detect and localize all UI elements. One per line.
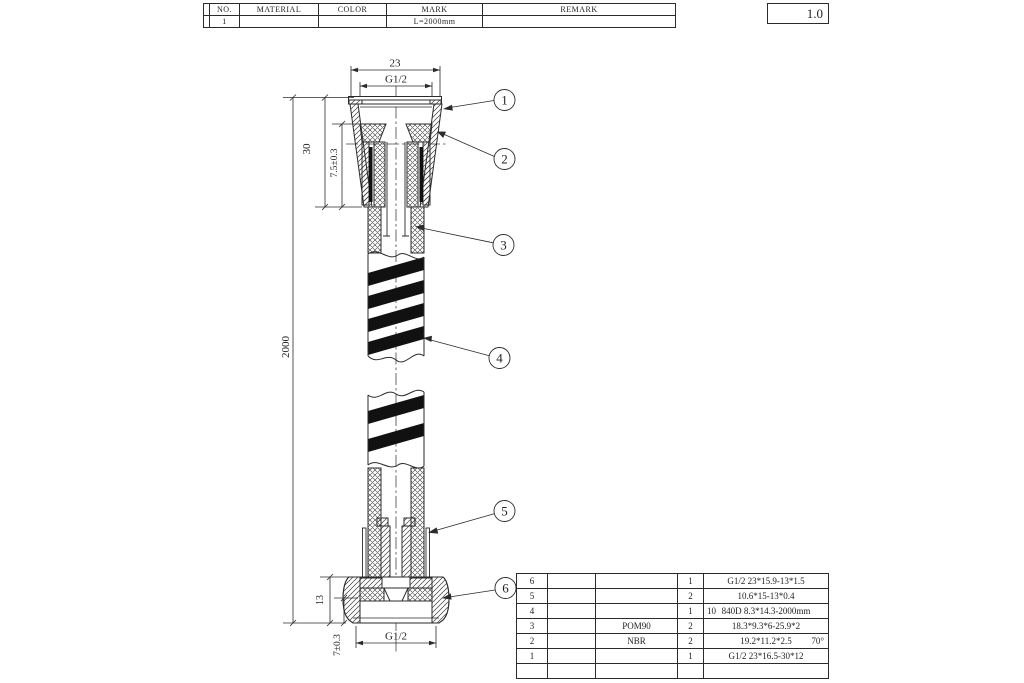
dim-g12-top-label: G1/2 (385, 74, 407, 86)
part-remark: G1/2 23*15.9-13*1.5 (704, 574, 829, 589)
title-row-material (240, 16, 319, 28)
dim-7-label: 7±0.3 (333, 634, 343, 656)
part-name (548, 634, 596, 649)
part-name (548, 604, 596, 619)
title-col-material: MATERIAL (240, 4, 319, 16)
title-col-remark: REMARK (483, 4, 676, 16)
parts-list-table: 6 1 G1/2 23*15.9-13*1.5 5 2 10.6*15-13*0… (516, 573, 829, 679)
part-qty: 2 (678, 634, 704, 649)
title-row-no: 1 (210, 16, 240, 28)
bottom-fitting-nut (343, 577, 449, 623)
part-material (596, 664, 678, 679)
part-no: 3 (517, 619, 548, 634)
title-col-color: COLOR (319, 4, 387, 16)
dim-13-label: 13 (315, 595, 326, 605)
part-material: POM90 (596, 619, 678, 634)
remark-text: 19.2*11.2*2.5 (740, 637, 791, 646)
part-remark (704, 664, 829, 679)
ferrule-sleeve (363, 528, 367, 577)
callout-1: 1 (501, 93, 508, 108)
part-no: 6 (517, 574, 548, 589)
dim-30-label: 30 (301, 143, 313, 155)
title-row-mark: L=2000mm (387, 16, 483, 28)
version-value: 1.0 (807, 6, 823, 22)
part-no (517, 664, 548, 679)
part-remark: 19.2*11.2*2.570° (704, 634, 829, 649)
remark-prefix: 10 (707, 607, 716, 616)
part-remark: G1/2 23*16.5-30*12 (704, 649, 829, 664)
version-box: 1.0 (767, 3, 829, 24)
part-qty: 1 (678, 574, 704, 589)
engineering-drawing-page: 23 G1/2 2000 30 7.5±0.3 13 7±0.3 G1/2 1 … (0, 0, 1024, 683)
remark-suffix: 70° (811, 637, 824, 646)
part-remark: 10840D 8.3*14.3-2000mm (704, 604, 829, 619)
dim-23-label: 23 (390, 58, 402, 70)
remark-text: 840D 8.3*14.3-2000mm (722, 607, 811, 616)
part-no: 5 (517, 589, 548, 604)
title-row-remark (483, 16, 676, 28)
remark-text: G1/2 23*16.5-30*12 (729, 652, 804, 661)
dim-2000-label: 2000 (280, 336, 292, 359)
part-no: 4 (517, 604, 548, 619)
remark-text: 18.3*9.3*6-25.9*2 (732, 622, 800, 631)
part-qty: 1 (678, 604, 704, 619)
part-remark: 10.6*15-13*0.4 (704, 589, 829, 604)
callout-3: 3 (500, 238, 507, 253)
title-col-mark: MARK (387, 4, 483, 16)
part-remark: 18.3*9.3*6-25.9*2 (704, 619, 829, 634)
dimension-length-2000 (283, 95, 354, 627)
part-material (596, 589, 678, 604)
part-name (548, 589, 596, 604)
part-material (596, 604, 678, 619)
part-qty (678, 664, 704, 679)
callout-2: 2 (501, 152, 508, 167)
part-name (548, 649, 596, 664)
remark-text: 10.6*15-13*0.4 (738, 592, 795, 601)
part-name (548, 574, 596, 589)
part-name (548, 619, 596, 634)
remark-text: G1/2 23*15.9-13*1.5 (727, 577, 804, 586)
part-material (596, 649, 678, 664)
ferrule-sleeve (426, 528, 430, 577)
shower-hose-section-drawing: 23 G1/2 2000 30 7.5±0.3 13 7±0.3 G1/2 1 … (0, 0, 1024, 683)
part-qty: 1 (678, 649, 704, 664)
part-no: 1 (517, 649, 548, 664)
callout-6: 6 (502, 581, 509, 596)
title-row-color (319, 16, 387, 28)
part-no: 2 (517, 634, 548, 649)
part-name (548, 664, 596, 679)
title-block-table: NO. MATERIAL COLOR MARK REMARK 1 L=2000m… (203, 3, 676, 28)
part-material (596, 574, 678, 589)
callout-5: 5 (501, 504, 508, 519)
title-col-no: NO. (210, 4, 240, 16)
dim-7p5-label: 7.5±0.3 (330, 148, 340, 177)
part-material: NBR (596, 634, 678, 649)
part-qty: 2 (678, 619, 704, 634)
part-qty: 2 (678, 589, 704, 604)
callout-4: 4 (496, 351, 503, 366)
dim-g12-bottom-label: G1/2 (385, 631, 407, 643)
